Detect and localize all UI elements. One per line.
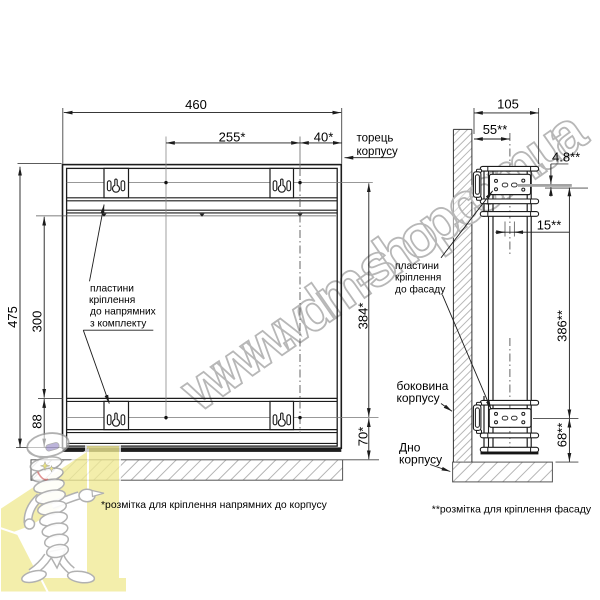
svg-text:кріплення: кріплення	[395, 273, 441, 284]
svg-text:460: 460	[185, 97, 207, 112]
svg-text:105: 105	[497, 97, 519, 112]
svg-text:4.8**: 4.8**	[552, 149, 580, 164]
svg-text:пластини: пластини	[90, 283, 134, 294]
svg-text:55**: 55**	[483, 122, 508, 137]
svg-text:70*: 70*	[356, 427, 371, 447]
svg-text:68**: 68**	[554, 423, 569, 448]
svg-text:корпусу: корпусу	[357, 146, 399, 158]
svg-text:15**: 15**	[537, 218, 562, 233]
svg-text:88: 88	[30, 414, 45, 428]
svg-text:пластини: пластини	[395, 261, 439, 272]
svg-text:386**: 386**	[554, 310, 569, 342]
svg-text:255*: 255*	[219, 130, 246, 145]
svg-text:300: 300	[30, 311, 45, 333]
svg-text:кріплення: кріплення	[89, 295, 135, 306]
svg-text:з комплекту: з комплекту	[90, 318, 147, 329]
svg-text:475: 475	[5, 306, 20, 328]
svg-text:торець: торець	[357, 133, 394, 145]
svg-text:**розмітка для кріплення фасад: **розмітка для кріплення фасаду	[432, 504, 592, 516]
svg-text:384*: 384*	[356, 303, 371, 330]
svg-text:корпусу: корпусу	[397, 391, 440, 405]
svg-text:корпусу: корпусу	[399, 452, 442, 466]
svg-text:до фасаду: до фасаду	[395, 283, 446, 295]
svg-text:*розмітка для кріплення напрям: *розмітка для кріплення напрямних до кор…	[101, 500, 328, 511]
svg-text:40*: 40*	[314, 129, 334, 144]
svg-text:до напрямних: до напрямних	[90, 307, 156, 318]
